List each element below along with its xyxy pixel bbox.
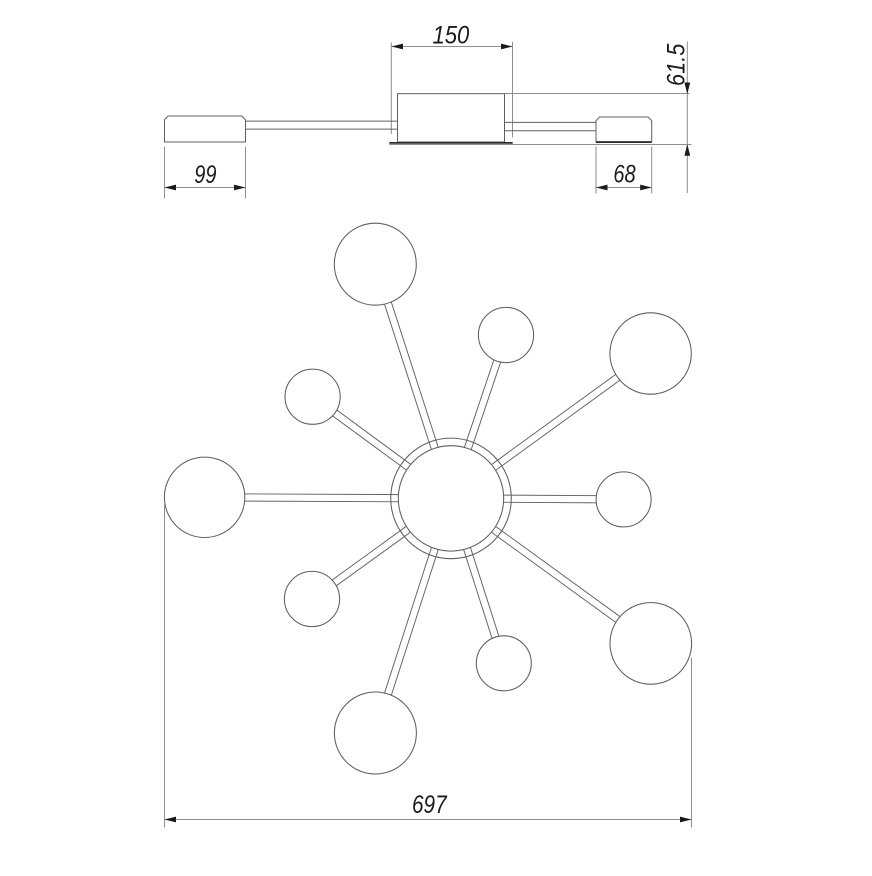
svg-text:68: 68 [613, 161, 636, 189]
svg-text:61.5: 61.5 [662, 43, 690, 86]
svg-text:99: 99 [194, 161, 217, 189]
svg-text:150: 150 [432, 22, 469, 50]
svg-text:697: 697 [412, 790, 448, 818]
